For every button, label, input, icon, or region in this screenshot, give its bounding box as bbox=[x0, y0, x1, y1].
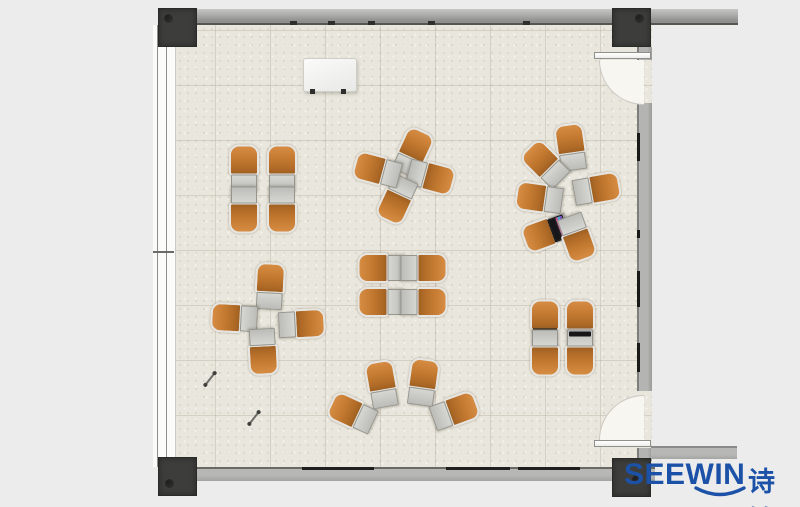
room-floor bbox=[176, 25, 652, 467]
wall-bottom bbox=[160, 467, 655, 481]
window-wall-left bbox=[153, 25, 176, 467]
door-leaf-bottom-right bbox=[594, 440, 651, 447]
door-leaf-top-right bbox=[594, 52, 651, 59]
brand-logo: SEEWIN 诗敏 bbox=[622, 454, 800, 504]
wall-right bbox=[637, 103, 652, 391]
column-top-right bbox=[612, 8, 651, 47]
wall-top bbox=[160, 9, 738, 25]
column-bottom-left bbox=[158, 457, 197, 496]
window-mullion-joint bbox=[153, 251, 174, 253]
brand-name-cn: 诗敏 bbox=[748, 460, 800, 507]
logo-swoosh-icon bbox=[692, 486, 748, 499]
column-top-left bbox=[158, 8, 197, 47]
floor-plan: SEEWIN 诗敏 bbox=[0, 0, 800, 507]
